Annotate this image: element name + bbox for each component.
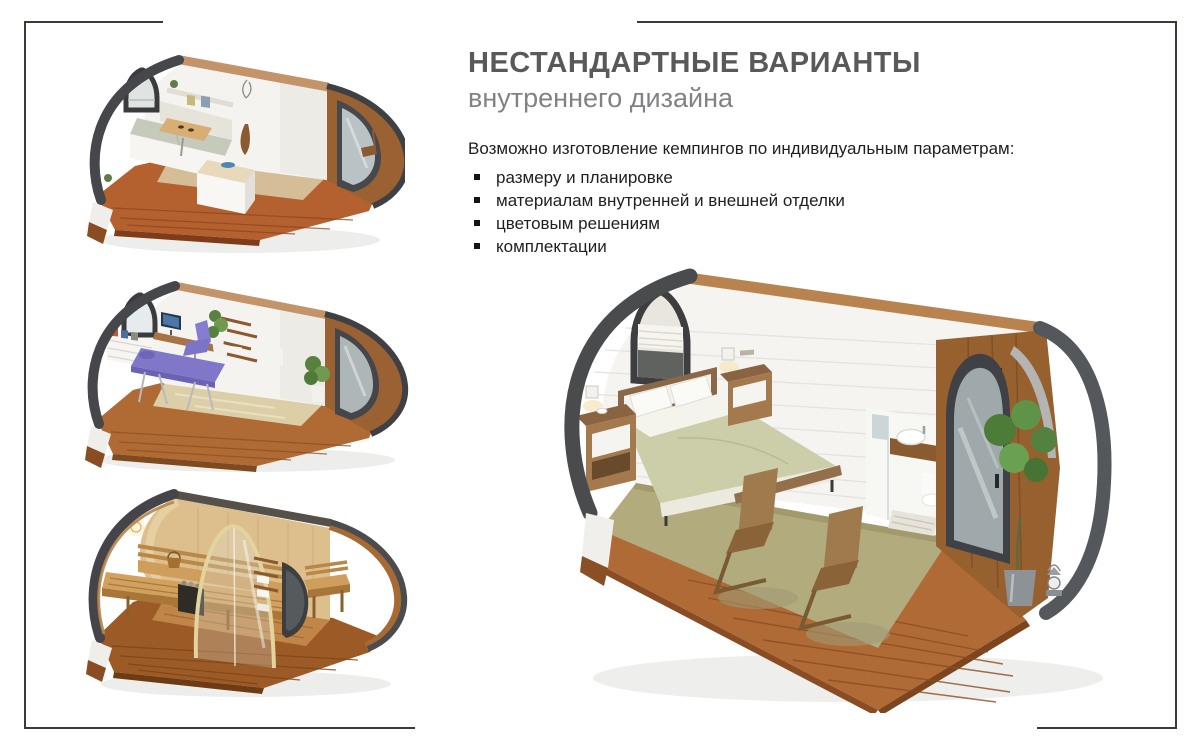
bullet-square-icon [474, 174, 480, 180]
massage-pod-render [75, 278, 415, 480]
lantern [1046, 565, 1062, 596]
bullet-square-icon [474, 197, 480, 203]
sauna-pod-render [78, 488, 413, 705]
office-pod-illustration [75, 48, 405, 263]
frame-top-left-segment [24, 21, 163, 23]
frame-bottom-left-segment [24, 727, 415, 729]
bullet-item: материалам внутренней и внешней отделки [468, 189, 1048, 212]
massage-pod-illustration [75, 278, 415, 480]
frame-left [24, 21, 26, 729]
frame-top-right-segment [637, 21, 1177, 23]
frame-right [1175, 21, 1177, 729]
office-pod-render [75, 48, 405, 263]
mirror [872, 414, 888, 440]
heading-block: НЕСТАНДАРТНЫЕ ВАРИАНТЫ внутреннего дизай… [468, 48, 1048, 258]
slide-canvas: НЕСТАНДАРТНЫЕ ВАРИАНТЫ внутреннего дизай… [0, 0, 1200, 750]
door-handle [995, 474, 999, 488]
bullet-item: комплектации [468, 235, 1048, 258]
wall-lamp [583, 386, 603, 412]
sink [897, 430, 925, 445]
frame-bottom-right-segment [1037, 727, 1177, 729]
bullet-list: размеру и планировке материалам внутренн… [468, 166, 1048, 258]
bullet-item: цветовым решениям [468, 212, 1048, 235]
potted-plant [104, 174, 112, 182]
bullet-item: размеру и планировке [468, 166, 1048, 189]
page-title: НЕСТАНДАРТНЫЕ ВАРИАНТЫ [468, 48, 1048, 80]
page-subtitle: внутреннего дизайна [468, 84, 1048, 114]
bedroom-pod-render [548, 268, 1143, 713]
arched-window [634, 292, 687, 384]
intro-text: Возможно изготовление кемпингов по индив… [468, 138, 1048, 159]
bathroom [866, 408, 945, 536]
bullet-square-icon [474, 220, 480, 226]
bedroom-pod-illustration [548, 268, 1143, 713]
bullet-square-icon [474, 243, 480, 249]
sauna-pod-illustration [78, 488, 413, 705]
